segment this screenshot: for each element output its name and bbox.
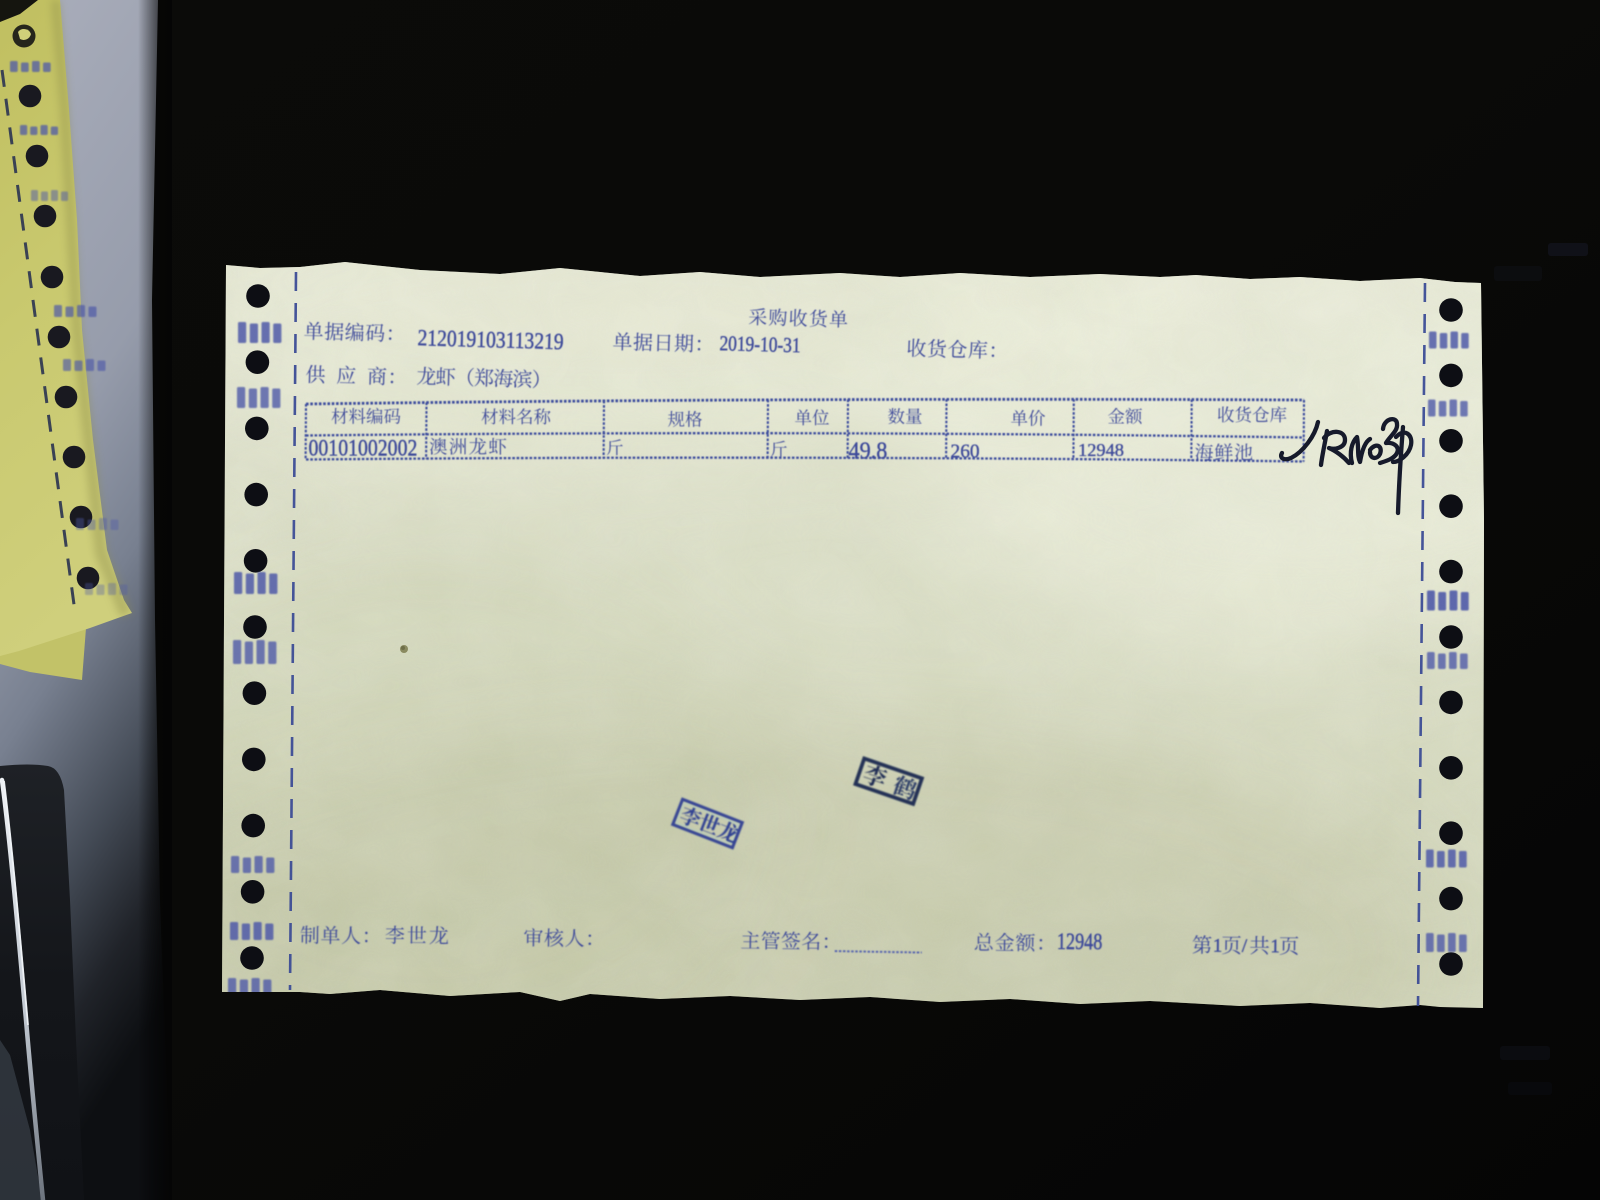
svg-text:49.8: 49.8 xyxy=(849,437,888,464)
svg-text:00101002002: 00101002002 xyxy=(309,435,418,461)
svg-text:2019-10-31: 2019-10-31 xyxy=(719,333,801,358)
svg-text:212019103113219: 212019103113219 xyxy=(417,325,564,355)
svg-text:1: 1 xyxy=(1270,936,1280,957)
svg-text:/: / xyxy=(1242,936,1248,957)
svg-text:260: 260 xyxy=(951,440,980,463)
svg-text:12948: 12948 xyxy=(1057,930,1103,955)
svg-text:1: 1 xyxy=(1213,936,1223,957)
svg-text:12948: 12948 xyxy=(1078,440,1124,460)
